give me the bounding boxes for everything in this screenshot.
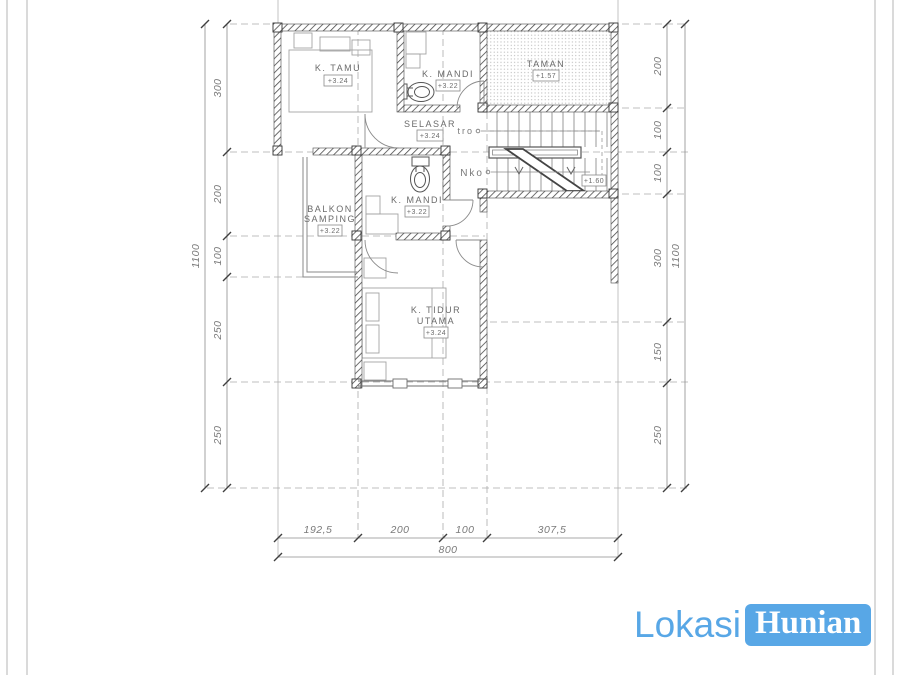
selasar-elevation: +3.24 — [420, 133, 440, 140]
dim-left-4: 250 — [212, 320, 224, 340]
dim-left-2: 200 — [212, 184, 224, 204]
label-k-tidur: K. TIDUR UTAMA +3.24 — [411, 305, 461, 338]
logo-word-hunian: Hunian — [745, 604, 871, 646]
selasar-label: SELASAR — [404, 119, 456, 129]
k-tamu-elevation: +3.24 — [328, 78, 348, 85]
dim-right-4: 300 — [652, 248, 664, 267]
k-mandi-atas-label: K. MANDI — [422, 69, 474, 79]
dim-right-total: 1100 — [670, 244, 682, 269]
bathroom-top-fixtures — [406, 32, 426, 68]
label-k-tamu: K. TAMU +3.24 — [315, 63, 361, 86]
logo-word-lokasi: Lokasi — [634, 604, 741, 646]
k-mandi-elevation: +3.22 — [407, 209, 427, 216]
dim-left-total: 1100 — [190, 244, 202, 269]
dim-left-1: 300 — [212, 78, 224, 97]
floor-plan-sheet: K. TAMU +3.24 K. MANDI +3.22 TAMAN +1.57… — [0, 0, 900, 675]
k-tidur-label-line1: K. TIDUR — [411, 305, 461, 315]
floor-plan-drawing: K. TAMU +3.24 K. MANDI +3.22 TAMAN +1.57… — [0, 0, 900, 675]
taman-label: TAMAN — [527, 59, 565, 69]
label-balkon: BALKON SAMPING +3.22 — [304, 204, 356, 236]
dim-bottom-total: 800 — [438, 544, 457, 556]
dim-right-2: 100 — [652, 120, 664, 139]
dim-bottom-2: 200 — [389, 524, 409, 536]
k-tamu-label: K. TAMU — [315, 63, 361, 73]
dim-bottom-1: 192,5 — [304, 524, 333, 536]
dim-left-5: 250 — [212, 425, 224, 445]
label-k-mandi: K. MANDI +3.22 — [391, 195, 443, 217]
dim-right-6: 250 — [652, 425, 664, 445]
label-selasar: SELASAR +3.24 — [404, 119, 456, 141]
balkon-label-line2: SAMPING — [304, 214, 356, 224]
toilet-mid-icon — [411, 157, 430, 192]
nko-note: Nko — [460, 168, 484, 179]
balkon-label-line1: BALKON — [307, 204, 353, 214]
dim-right-5: 150 — [652, 342, 664, 361]
dim-left-3: 100 — [212, 246, 224, 265]
dim-bottom-3: 100 — [455, 524, 474, 536]
k-tidur-elevation: +3.24 — [426, 330, 446, 337]
dim-bottom-4: 307,5 — [538, 524, 567, 536]
taman-elevation: +1.57 — [536, 73, 556, 80]
k-tidur-label-line2: UTAMA — [417, 316, 455, 326]
dim-right-1: 200 — [652, 56, 664, 76]
lokasihunian-logo: Lokasi Hunian — [634, 604, 871, 646]
k-mandi-atas-elevation: +3.22 — [438, 83, 458, 90]
tro-note: tro — [457, 126, 474, 136]
stair-landing-elevation: +1.60 — [584, 178, 604, 185]
dim-right-3: 100 — [652, 163, 664, 182]
sheet-border — [7, 0, 893, 675]
k-mandi-label: K. MANDI — [391, 195, 443, 205]
balkon-elevation: +3.22 — [320, 228, 340, 235]
